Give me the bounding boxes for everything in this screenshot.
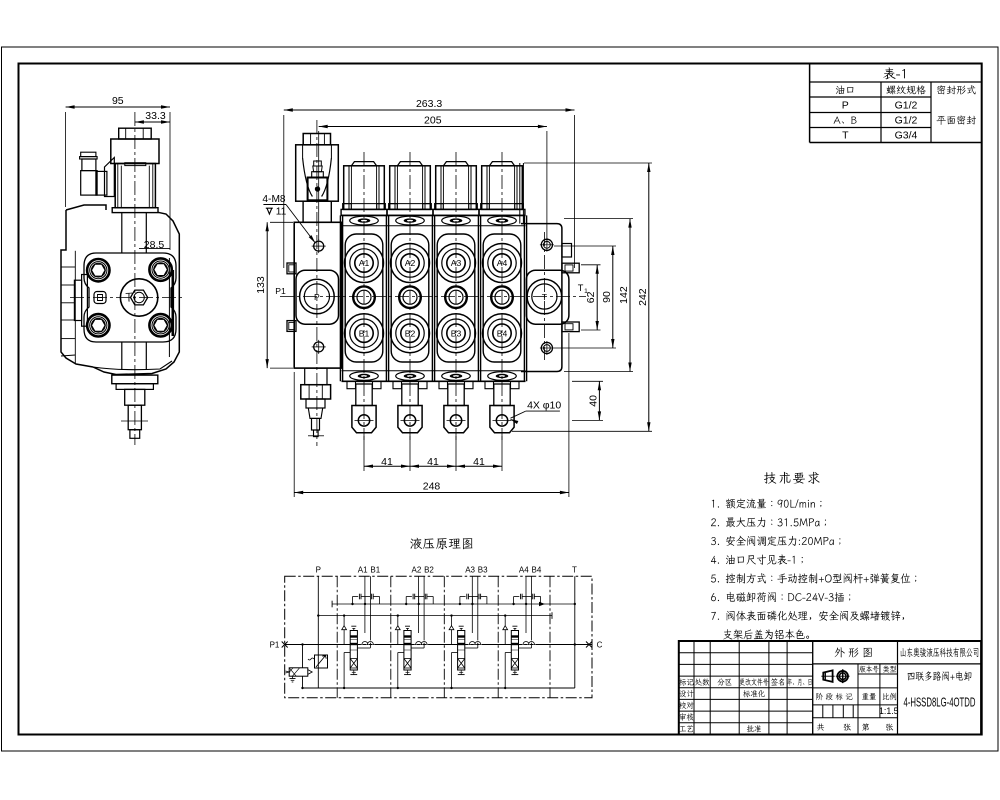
svg-text:41: 41: [381, 456, 393, 468]
svg-text:4-M8: 4-M8: [262, 194, 286, 205]
svg-text:T: T: [842, 130, 849, 142]
svg-text:B3: B3: [478, 566, 488, 575]
svg-text:40: 40: [587, 395, 599, 407]
svg-text:1:1.5: 1:1.5: [879, 706, 899, 716]
svg-text:A2: A2: [412, 566, 422, 575]
svg-text:142: 142: [618, 286, 630, 304]
svg-text:B4: B4: [532, 566, 542, 575]
svg-text:G1/2: G1/2: [895, 100, 918, 112]
svg-text:4X: 4X: [527, 400, 540, 412]
svg-text:4-HSSD8LG-4OTDD: 4-HSSD8LG-4OTDD: [904, 696, 976, 710]
svg-text:263.3: 263.3: [416, 98, 442, 110]
svg-text:41: 41: [473, 456, 485, 468]
svg-text:11: 11: [276, 207, 287, 218]
svg-text:P1: P1: [275, 286, 286, 296]
svg-text:G1/2: G1/2: [895, 115, 918, 127]
svg-text:P: P: [316, 566, 321, 575]
svg-text:G3/4: G3/4: [895, 130, 918, 142]
svg-text:A3: A3: [465, 566, 475, 575]
svg-text:B2: B2: [424, 566, 434, 575]
svg-text:P: P: [842, 100, 849, 112]
svg-text:90: 90: [601, 291, 613, 303]
svg-text:1: 1: [584, 288, 588, 295]
svg-text:C: C: [597, 641, 603, 650]
svg-text:248: 248: [423, 481, 441, 493]
svg-text:133: 133: [255, 276, 267, 294]
svg-text:A4: A4: [519, 566, 529, 575]
svg-text:205: 205: [424, 115, 442, 127]
svg-text:P1: P1: [270, 641, 280, 650]
svg-text:T: T: [578, 283, 584, 293]
svg-text:A1: A1: [358, 566, 368, 575]
svg-text:T: T: [572, 566, 577, 575]
svg-text:φ10: φ10: [543, 400, 562, 412]
svg-text:33.3: 33.3: [145, 110, 166, 122]
svg-text:242: 242: [637, 288, 649, 306]
svg-text:95: 95: [112, 95, 124, 107]
svg-text:41: 41: [427, 456, 439, 468]
svg-text:B1: B1: [370, 566, 380, 575]
